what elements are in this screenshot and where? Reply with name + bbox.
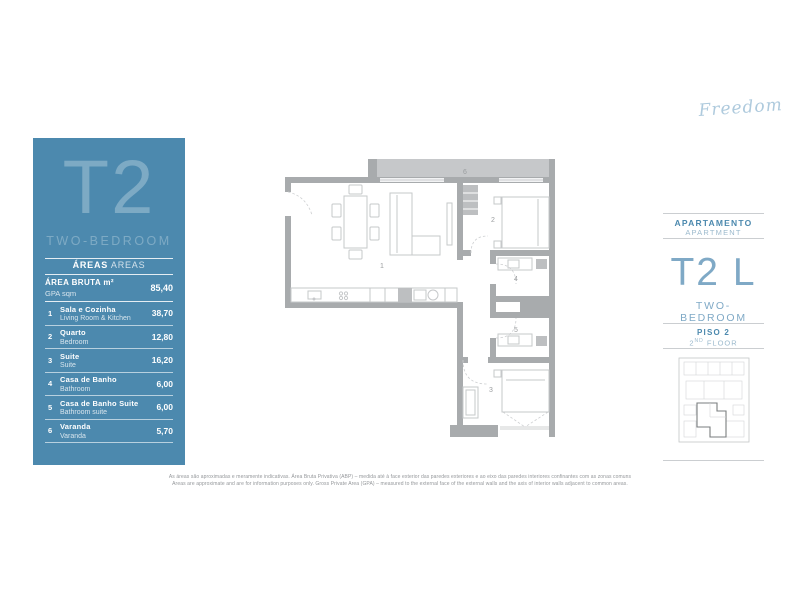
- divider: [663, 348, 764, 349]
- bathroom-door-arc: [496, 264, 516, 284]
- bedroom-door-arc: [471, 236, 488, 253]
- unit-code: T2 L: [663, 249, 764, 297]
- wall-bedroom-bottom-b: [490, 250, 555, 256]
- room-number: 1: [45, 309, 60, 318]
- gross-area-label-pt: ÁREA BRUTA m²: [45, 278, 114, 287]
- freedom-logo: Freedom: [695, 95, 787, 131]
- divider: [663, 323, 764, 324]
- wall-suite-top-a: [463, 357, 468, 363]
- unit-type-label: TWO-BEDROOM: [663, 300, 764, 324]
- duct-block: [520, 302, 555, 312]
- hob-icon: [339, 292, 347, 300]
- areas-header-en: AREAS: [111, 260, 146, 270]
- room-name-pt: Varanda: [60, 422, 156, 431]
- column-block: [398, 288, 412, 302]
- floor-label-pt: PISO 2: [663, 328, 764, 337]
- room-area-value: 6,00: [156, 402, 173, 412]
- room-area-value: 16,20: [152, 355, 173, 365]
- balcony-rail: [368, 159, 555, 162]
- wall-corridor-a: [490, 256, 496, 264]
- suite-closet: [463, 387, 478, 418]
- table-row: 2 QuartoBedroom 12,80: [45, 326, 173, 350]
- room-name-pt: Casa de Banho Suite: [60, 399, 156, 408]
- room-label-bedroom: 2: [491, 217, 495, 224]
- room-area-value: 12,80: [152, 332, 173, 342]
- disclaimer: As áreas são aproximadas e meramente ind…: [100, 474, 700, 488]
- room-number: 2: [45, 332, 60, 341]
- room-area-value: 38,70: [152, 308, 173, 318]
- areas-panel: T2 TWO-BEDROOM ÁREAS AREAS ÁREA BRUTA m²…: [33, 138, 185, 465]
- divider: [663, 460, 764, 461]
- gross-area-row: ÁREA BRUTA m² GPA sqm 85,40: [45, 275, 173, 301]
- table-row: 3 SuiteSuite 16,20: [45, 349, 173, 373]
- wall-corridor-b: [490, 284, 496, 318]
- wall-bath5-top: [496, 312, 555, 318]
- wardrobe: [463, 185, 478, 215]
- floorplan-svg: 1 2 3 4 5 6: [280, 148, 565, 460]
- room-number: 6: [45, 426, 60, 435]
- bathroom-suite-fixtures: [498, 334, 547, 346]
- room-area-value: 6,00: [156, 379, 173, 389]
- wall-corridor-c: [490, 338, 496, 357]
- wall-bath4-bottom: [496, 296, 555, 302]
- apartment-label-pt: APARTAMENTO: [663, 218, 764, 228]
- wall-bottom-living: [285, 302, 463, 308]
- bedroom-bed: [494, 197, 549, 248]
- wall-living-bedroom: [457, 183, 463, 260]
- unit-type-watermark: T2: [33, 142, 185, 234]
- areas-header-pt: ÁREAS: [73, 260, 109, 270]
- room-name-pt: Suite: [60, 352, 152, 361]
- room-name-en: Suite: [60, 362, 152, 369]
- table-row: 5 Casa de Banho SuiteBathroom suite 6,00: [45, 396, 173, 420]
- wall-bottom-block: [450, 425, 498, 437]
- gross-area-label-en: GPA sqm: [45, 289, 114, 298]
- table-row: 4 Casa de BanhoBathroom 6,00: [45, 373, 173, 397]
- room-number: 3: [45, 356, 60, 365]
- room-name-en: Bedroom: [60, 339, 152, 346]
- wall-left-lower: [285, 216, 291, 308]
- disclaimer-line-en: Areas are approximate and are for inform…: [100, 481, 700, 488]
- room-area-value: 5,70: [156, 426, 173, 436]
- gross-area-value: 85,40: [150, 283, 173, 293]
- room-name-en: Varanda: [60, 433, 156, 440]
- room-label-suite: 3: [489, 387, 493, 394]
- key-plan: [663, 355, 764, 457]
- suite-door-arc: [463, 360, 487, 384]
- bathroom-suite-door-arc: [496, 318, 516, 338]
- table-row: 1 Sala e CozinhaLiving Room & Kitchen 38…: [45, 302, 173, 326]
- tv-unit: [447, 203, 452, 245]
- unit-type-watermark-label: TWO-BEDROOM: [33, 234, 185, 248]
- unit-info-panel: APARTAMENTO APARTMENT T2 L TWO-BEDROOM P…: [663, 205, 764, 465]
- disclaimer-line-pt: As áreas são aproximadas e meramente ind…: [100, 474, 700, 481]
- floor-label-en: 2ND FLOOR: [663, 338, 764, 348]
- divider: [663, 213, 764, 214]
- room-name-pt: Quarto: [60, 328, 152, 337]
- room-name-pt: Casa de Banho: [60, 375, 156, 384]
- floorplan: 1 2 3 4 5 6: [280, 148, 565, 460]
- bathroom-fixtures: [498, 258, 547, 270]
- kitchen-counter: [291, 288, 457, 302]
- sink-icon: [508, 260, 519, 268]
- toilet-icon: [536, 336, 547, 346]
- room-name-pt: Sala e Cozinha: [60, 305, 152, 314]
- areas-header: ÁREAS AREAS: [33, 260, 185, 270]
- areas-table: 1 Sala e CozinhaLiving Room & Kitchen 38…: [45, 302, 173, 443]
- toilet-icon: [536, 259, 547, 269]
- room-label-living: 1: [380, 263, 384, 270]
- room-name-en: Bathroom: [60, 386, 156, 393]
- suite-bed: [494, 370, 549, 412]
- apartment-label-en: APARTMENT: [663, 228, 764, 237]
- table-row: 6 VarandaVaranda 5,70: [45, 420, 173, 444]
- room-label-bathroom: 4: [514, 276, 518, 283]
- wall-wing-left: [457, 308, 463, 428]
- divider: [663, 238, 764, 239]
- sink-icon: [508, 336, 519, 344]
- divider: [45, 258, 173, 259]
- key-plan-svg: [663, 355, 764, 457]
- sofa: [390, 193, 440, 255]
- suite-window: [500, 412, 549, 429]
- washer-icon: [428, 290, 438, 300]
- dining-table: [332, 185, 379, 259]
- room-number: 4: [45, 379, 60, 388]
- wall-suite-top-b: [488, 357, 555, 363]
- entry-door-arc: [288, 192, 312, 215]
- brochure-page: Freedom T2 TWO-BEDROOM ÁREAS AREAS ÁREA …: [0, 0, 800, 600]
- room-name-en: Bathroom suite: [60, 409, 156, 416]
- room-number: 5: [45, 403, 60, 412]
- wall-bedroom-bottom-a: [463, 250, 471, 256]
- wall-left-upper: [285, 177, 291, 192]
- room-label-bathroom-suite: 5: [514, 327, 518, 334]
- room-name-en: Living Room & Kitchen: [60, 315, 152, 322]
- room-label-balcony: 6: [463, 169, 467, 176]
- key-plan-unit-highlight: [697, 403, 726, 437]
